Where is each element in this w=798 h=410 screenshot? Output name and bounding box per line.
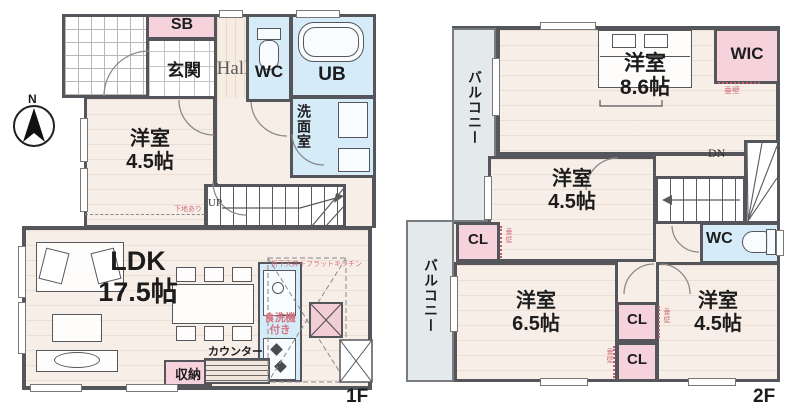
- f2-west-room-45-br-label: 洋室 4.5帖: [656, 290, 780, 336]
- pillow-icon: [644, 34, 668, 48]
- window: [30, 384, 82, 392]
- pillow-icon: [612, 34, 636, 48]
- f2-stairs-run: [654, 176, 746, 224]
- compass-circle: [14, 106, 54, 146]
- room-name: LDK: [110, 246, 166, 277]
- f1-stairs-up-label: UP: [208, 197, 222, 209]
- f1-dishwasher-note: 食洗機付き: [261, 312, 299, 336]
- tv-icon: [54, 352, 100, 368]
- room-name: 洋室: [552, 168, 592, 191]
- f2-balcony-upper-label: バルコニー: [465, 70, 485, 145]
- coffee-table-icon: [52, 314, 102, 342]
- f1-wc-label: WC: [246, 62, 292, 82]
- room-size: 6.5帖: [512, 313, 560, 336]
- hanging-wall-dots: [718, 82, 760, 84]
- room-size: 17.5帖: [98, 277, 178, 308]
- bathtub-inner-icon: [303, 27, 359, 57]
- f1-counter-label: カウンター: [208, 343, 263, 359]
- f2-closet-mid-lower-label: CL: [616, 351, 658, 368]
- f2-hanging-wall-note: 垂壁: [604, 348, 614, 364]
- window: [776, 230, 784, 256]
- f1-west-room-label: 洋室 4.5帖: [84, 128, 216, 174]
- compass-n-label: N: [28, 92, 37, 106]
- f2-wc-label: WC: [706, 230, 733, 248]
- room-name: 洋室: [130, 128, 170, 151]
- f2-west-room-86-label: 洋室 8.6帖: [580, 52, 710, 100]
- window: [18, 302, 26, 354]
- window: [18, 246, 26, 298]
- base-note-dash-line: [85, 214, 205, 215]
- f2-stairs-dn-label: DN: [708, 146, 725, 161]
- window: [540, 22, 596, 30]
- window: [540, 378, 588, 386]
- room-name: 洋室: [624, 52, 666, 76]
- f1-storage-label: 収納: [164, 364, 212, 383]
- window: [296, 10, 340, 18]
- f1-shoe-box-label: SB: [146, 16, 218, 34]
- toilet-bowl-icon: [742, 231, 768, 253]
- room-size: 8.6帖: [620, 76, 670, 100]
- f2-west-room-65-label: 洋室 6.5帖: [454, 290, 618, 336]
- room-size: 4.5帖: [694, 313, 742, 336]
- floor-plan-canvas: SB 玄関 Hall WC UB 洗面室 洋室 4.5帖 LDK 17.5帖 U…: [0, 0, 798, 410]
- room-name: 洋室: [516, 290, 556, 313]
- f1-floor-label: 1F: [346, 386, 368, 408]
- room-size: 4.5帖: [126, 151, 174, 174]
- washing-machine-icon: [338, 102, 368, 138]
- window: [126, 384, 178, 392]
- window: [80, 168, 88, 212]
- hanging-wall-dots: [500, 226, 502, 258]
- f1-entrance-label: 玄関: [152, 56, 216, 81]
- f2-west-room-45-mid-label: 洋室 4.5帖: [488, 168, 656, 214]
- f1-stairs: [204, 184, 346, 228]
- chair-icon: [232, 326, 252, 341]
- chair-icon: [204, 326, 224, 341]
- f2-balcony-lower-label: バルコニー: [421, 258, 441, 333]
- window: [219, 10, 243, 18]
- f1-entrance-porch: [62, 14, 150, 98]
- toilet-tank-icon: [766, 229, 776, 255]
- chair-icon: [176, 326, 196, 341]
- f2-closet-left-label: CL: [456, 231, 500, 248]
- f1-ub-label: UB: [300, 64, 364, 86]
- window: [688, 378, 736, 386]
- room-name: 洋室: [698, 290, 738, 313]
- f1-sink-faucet-icon: [272, 282, 284, 294]
- f1-ceiling-note: 折下天井＋フラットキッチン: [271, 259, 362, 269]
- room-size: 4.5帖: [548, 191, 596, 214]
- vanity-sink-icon: [338, 148, 370, 172]
- f2-floor-label: 2F: [753, 386, 775, 408]
- f2-hanging-wall-note: 垂壁: [503, 228, 513, 244]
- chair-icon: [232, 267, 252, 282]
- toilet-tank-icon: [257, 28, 281, 40]
- compass-north-arrow-icon: [23, 108, 45, 142]
- f2-stairs-winder: [744, 140, 780, 224]
- f1-counter-top: [204, 358, 270, 384]
- f2-wic-label: WIC: [714, 44, 780, 64]
- window: [492, 58, 500, 116]
- f1-ldk-label: LDK 17.5帖: [68, 246, 208, 308]
- f2-hanging-wall-note: 垂壁: [724, 85, 740, 96]
- f1-washroom-label: 洗面室: [294, 104, 314, 149]
- f1-base-note: 下地あり: [174, 204, 202, 214]
- f2-closet-mid-upper-label: CL: [616, 311, 658, 328]
